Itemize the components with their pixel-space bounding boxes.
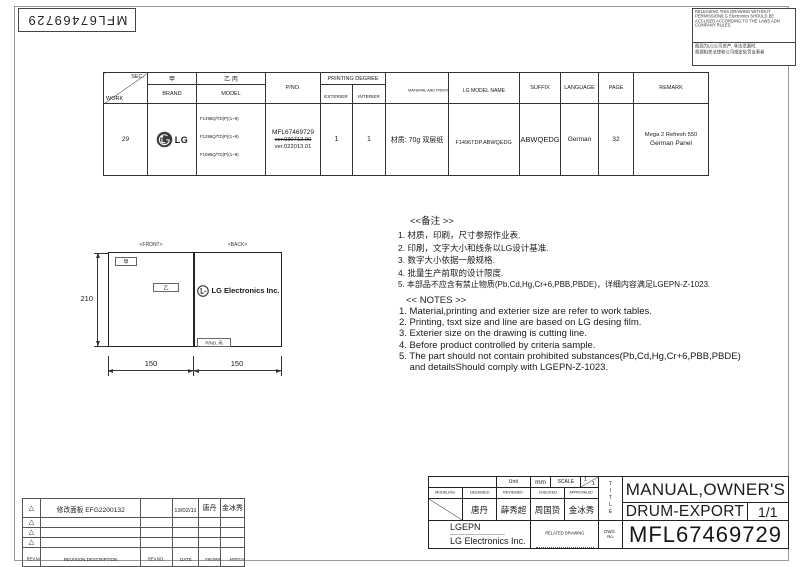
rev-marker-1: △ (23, 499, 41, 518)
rev-header-no: REV.No. (23, 548, 41, 567)
back-panel-logo-text: LG Electronics Inc. (212, 286, 280, 295)
tb-checked-name: 周国贽 (530, 498, 565, 521)
notice-chinese-line2: 根据相关法律和公司规定处罚当事者 (695, 50, 794, 56)
drawing-sheet: { "frame": { "code_label": "MFL67469729"… (0, 0, 802, 567)
dim-arrow-left-1 (108, 369, 113, 373)
header-brand: BRAND (148, 85, 197, 104)
pno-marker-text: P/NO. 丙 (205, 339, 222, 345)
tb-drawing-number: MFL67469729 (622, 520, 789, 549)
notice-english-text: RELEASING THIS DRAWING WITHOUT PERMISSIO… (695, 10, 794, 28)
model-line-2: F1296Q/TD(P)(1~9) (200, 135, 239, 140)
work-table: SEC. WORK 甲 乙 丙 P/NO. PRINTING DEGREE MA… (103, 72, 709, 176)
suffix-value: ABWQEDG (520, 104, 561, 176)
tb-approvaled-name: 金冰秀 (564, 498, 599, 521)
lg-logo-icon (156, 131, 173, 148)
model-line-1: F1496Q/TD(P)(1~9) (200, 117, 239, 122)
lg-model-name-value: F1496TDP.ABWQEDG (449, 104, 520, 176)
page-value: 32 (599, 104, 634, 176)
rev-header-desc: REVISION DESCRIPTION (41, 548, 141, 567)
header-remark: REMARK (634, 73, 709, 104)
header-exterier: EXTERIER (321, 85, 353, 104)
lg-model-name-text: F1496TDP.ABWQEDG (456, 140, 512, 146)
header-pno: P/NO. (266, 73, 321, 104)
pno-marker-box: P/NO. 丙 (197, 338, 231, 347)
jia-marker-text: 甲 (123, 258, 128, 266)
company-name: LG Electronics Inc. (450, 536, 526, 547)
note-cn-4: 4. 批量生产前取的设计限度. (398, 267, 738, 280)
rev-desc-4 (41, 538, 141, 548)
confidentiality-notice: RELEASING THIS DRAWING WITHOUT PERMISSIO… (692, 8, 796, 66)
pno-value: MFL67469729 (266, 129, 320, 137)
note-en-5b: and detailsShould comply with LGEPN-Z-10… (399, 362, 779, 373)
dim-height-line (97, 253, 98, 346)
header-suffix: SUFFIX (520, 73, 561, 104)
related-drawing-label: RELATED DRAWING (545, 532, 584, 536)
note-en-3: 3. Exterier size on the drawing is cutti… (399, 328, 779, 339)
dim-ext-mid (193, 356, 194, 376)
tb-modeling-signature (428, 498, 463, 521)
note-cn-2: 2. 印刷，文字大小和线条以LG设计基准. (398, 242, 738, 255)
work-value: 29 (104, 104, 148, 176)
tb-related-drawing-cell: RELATED DRAWING (530, 520, 599, 549)
remark-line-2: German Panel (634, 139, 708, 148)
header-interier-text: INTERIER (358, 95, 380, 100)
scale-numerator: 1 (584, 477, 587, 483)
remark-cell: Mega 2 Refresh 550 German Panel (634, 104, 709, 176)
dim-ext-left (108, 356, 109, 376)
part-number-stamp: MFL67469729 (18, 8, 136, 32)
jia-marker-box: 甲 (115, 257, 137, 266)
notice-english-box: RELEASING THIS DRAWING WITHOUT PERMISSIO… (692, 8, 796, 43)
model-line-3: F1096Q/TD(P)(1~9) (200, 153, 239, 158)
material-value: 材质: 70g 双层纸 (386, 104, 449, 176)
interier-value: 1 (353, 104, 386, 176)
rev-desc-1: 修改面板 EFG2200132 (41, 499, 141, 518)
dim-ext-right (281, 356, 282, 376)
pno-version-new: ver.022013.01 (266, 144, 320, 151)
rev-desc-2 (41, 518, 141, 528)
notes-chinese-title: <<备注 >> (410, 213, 454, 227)
back-panel-logo: LG Electronics Inc. (196, 283, 280, 298)
header-jia: 甲 (148, 73, 197, 85)
rev-header-no2: REV.NO. (141, 548, 173, 567)
rev-no-1 (141, 499, 173, 518)
rev-desc-3 (41, 528, 141, 538)
rev-marker-2: △ (23, 518, 41, 528)
tb-designed-name: 唐丹 (462, 498, 497, 521)
notice-chinese-box: 图面为LG公司资产, 非法泄漏时, 根据相关法律和公司规定处罚当事者 (692, 42, 796, 66)
header-sec-work: SEC. WORK (104, 73, 148, 104)
notes-english-title: << NOTES >> (406, 295, 466, 306)
revision-table: △ 修改面板 EFG2200132 13/02/11 唐丹 金冰秀 △ △ △ (22, 498, 245, 567)
note-en-5: 5. The part should not contain prohibite… (399, 351, 779, 362)
tb-dwg-no: DWG. No. (598, 520, 623, 549)
dim-arrow-right-2 (276, 369, 281, 373)
yi-marker-box: 乙 (153, 283, 179, 292)
lg-logo-small-icon (197, 285, 209, 297)
header-sec: SEC. (131, 74, 144, 80)
dim-arrow-right-1 (188, 369, 193, 373)
rev-marker-3: △ (23, 528, 41, 538)
rev-header-prepared: PREPARED (199, 548, 221, 567)
dim-front-value: 150 (131, 359, 171, 368)
note-cn-5: 5. 本部品不应含有禁止物质(Pb,Cd,Hg,Cr+6,PBB,PBDE)，详… (398, 279, 738, 292)
model-cell: F1496Q/TD(P)(1~9) F1296Q/TD(P)(1~9) F109… (197, 104, 266, 176)
note-en-1: 1. Material,printing and exterier size a… (399, 306, 779, 317)
tb-doc-title: MANUAL,OWNER'S (622, 476, 789, 503)
tb-sheet-number: 1/1 (747, 502, 790, 521)
header-exterier-text: EXTERIER (325, 95, 348, 100)
dim-back-value: 150 (217, 359, 257, 368)
brand-cell: LG (148, 104, 197, 176)
header-material-text: MATERIAL AND PRINTING DESCRIPTION (408, 89, 448, 93)
note-cn-1: 1. 材质，印刷，尺寸参照作业表. (398, 229, 738, 242)
note-cn-3: 3. 数字大小依据一般规格. (398, 254, 738, 267)
pno-version-old: ver.030712.00 (266, 137, 320, 144)
related-drawing-line (536, 540, 594, 548)
header-page: PAGE (599, 73, 634, 104)
dim-ext-bottom (94, 346, 108, 347)
panel-outline (108, 252, 282, 347)
header-model: MODEL (197, 85, 266, 104)
note-en-2: 2. Printing, tsxt size and line are base… (399, 317, 779, 328)
back-panel-label: <BACK> (194, 242, 281, 248)
dim-ext-top (94, 253, 108, 254)
tb-reviewed-name: 薛秀超 (496, 498, 531, 521)
part-number-stamp-text: MFL67469729 (27, 13, 127, 28)
note-en-4: 4. Before product controlled by criteria… (399, 340, 779, 351)
front-panel-label: <FRONT> (108, 242, 194, 248)
panel-divider (193, 252, 195, 347)
header-printing-degree: PRINTING DEGREE (321, 73, 386, 85)
rev-header-date: DATE (173, 548, 199, 567)
header-work: WORK (106, 96, 123, 102)
company-divider (450, 534, 505, 535)
rev-header-approvaled: APPROVALED (221, 548, 245, 567)
pno-cell: MFL67469729 ver.030712.00 ver.022013.01 (266, 104, 321, 176)
tb-doc-subtitle: DRUM-EXPORT (622, 502, 748, 521)
remark-line-1: Mega 2 Refresh 550 (634, 131, 708, 139)
header-material: MATERIAL AND PRINTING DESCRIPTION (386, 73, 449, 104)
language-value: German (561, 104, 599, 176)
header-language: LANGUAGE (561, 73, 599, 104)
brand-text: LG (175, 135, 189, 145)
dim-height-value: 210 (76, 294, 93, 303)
header-lg-model-name-text: LG MODEL NAME (463, 88, 505, 93)
rev-date-1: 13/02/11 (173, 499, 199, 518)
exterier-value: 1 (321, 104, 353, 176)
dim-arrow-left-2 (194, 369, 199, 373)
rev-prepared-1: 唐丹 (199, 499, 221, 518)
rev-marker-4: △ (23, 538, 41, 548)
header-lg-model-name: LG MODEL NAME (449, 73, 520, 104)
tb-title-vertical: TITLE (598, 476, 623, 521)
rev-approvaled-1: 金冰秀 (221, 499, 245, 518)
yi-marker-text: 乙 (163, 284, 168, 292)
header-interier: INTERIER (353, 85, 386, 104)
tb-company-cell: LGEPN LG Electronics Inc. (428, 520, 531, 549)
header-yibing: 乙 丙 (197, 73, 266, 85)
company-short: LGEPN (450, 522, 481, 533)
